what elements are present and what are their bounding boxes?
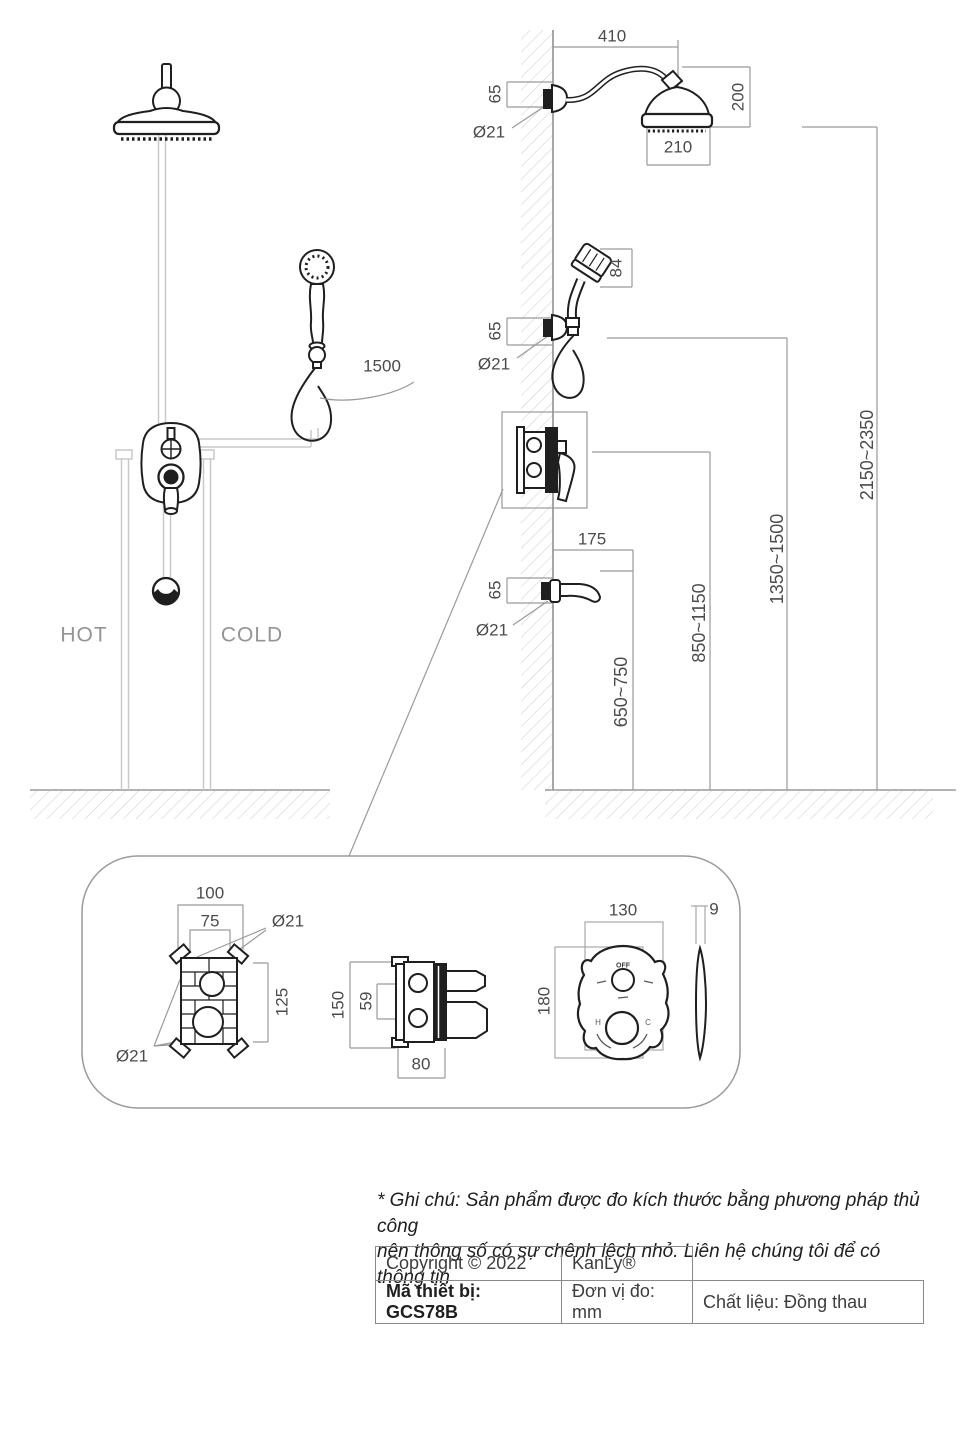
- left-shower-column: [114, 64, 334, 606]
- dim-spout-reach: 175: [578, 531, 606, 548]
- detail-trim-plate: [555, 906, 708, 1059]
- dim-range-hand: 1350~1500: [768, 514, 786, 605]
- wall-hatch: [521, 30, 553, 790]
- dim-plate-height: 180: [536, 987, 553, 1015]
- dim-plate-width: 130: [609, 902, 637, 919]
- dim-front-dia-top: Ø21: [272, 913, 304, 930]
- dim-plate-thickness: 9: [709, 901, 718, 918]
- table-row: Copyright © 2022 KanLy®: [376, 1247, 924, 1281]
- empty-cell: [693, 1247, 924, 1281]
- plate-hot-label: H: [595, 1019, 601, 1027]
- dim-range-spout: 650~750: [612, 657, 630, 728]
- dim-head-drop: 200: [730, 83, 747, 111]
- info-table: Copyright © 2022 KanLy® Mã thiết bị: GCS…: [375, 1246, 924, 1324]
- dim-side-outer-height: 150: [330, 991, 347, 1019]
- dim-arm-reach: 410: [598, 28, 626, 45]
- technical-drawing-page: 410 65 Ø21 200 210 84 65 Ø21 175 65 Ø21 …: [0, 0, 960, 1440]
- hot-label: HOT: [60, 625, 107, 646]
- table-row: Mã thiết bị: GCS78B Đơn vị đo: mm Chất l…: [376, 1281, 924, 1324]
- dim-front-outer-width: 100: [196, 885, 224, 902]
- dim-hand-head: 84: [608, 259, 625, 278]
- model-cell: Mã thiết bị: GCS78B: [376, 1281, 562, 1324]
- dim-hand-diameter: Ø21: [478, 356, 510, 373]
- floor-hatch: [30, 790, 956, 819]
- dim-range-head: 2150~2350: [858, 410, 876, 501]
- dim-range-valve: 850~1150: [690, 583, 708, 662]
- dim-spout-diameter: Ø21: [476, 622, 508, 639]
- unit-cell: Đơn vị đo: mm: [562, 1281, 693, 1324]
- dim-side-port-gap: 59: [358, 992, 375, 1011]
- dim-arm-diameter: Ø21: [473, 124, 505, 141]
- plate-off-label: OFF: [616, 963, 630, 970]
- copyright-cell: Copyright © 2022: [376, 1247, 562, 1281]
- hose-leader: [320, 382, 414, 400]
- dimension-lines: [349, 40, 877, 856]
- material-cell: Chất liệu: Đồng thau: [693, 1281, 924, 1324]
- dim-front-inner-height: 125: [274, 988, 291, 1016]
- cold-label: COLD: [221, 625, 283, 646]
- dim-arm-height: 65: [487, 85, 504, 104]
- dim-head-diameter: 210: [664, 139, 692, 156]
- dim-front-dia-bottom: Ø21: [116, 1048, 148, 1065]
- dim-hand-height: 65: [487, 322, 504, 341]
- dim-hose-length: 1500: [363, 358, 401, 375]
- dim-spout-height: 65: [487, 581, 504, 600]
- brand-cell: KanLy®: [562, 1247, 693, 1281]
- plate-cold-label: C: [645, 1019, 651, 1027]
- note-line-1: * Ghi chú: Sản phẩm được đo kích thước b…: [377, 1188, 925, 1239]
- dim-front-inner-width: 75: [201, 913, 220, 930]
- dim-side-depth: 80: [412, 1056, 431, 1073]
